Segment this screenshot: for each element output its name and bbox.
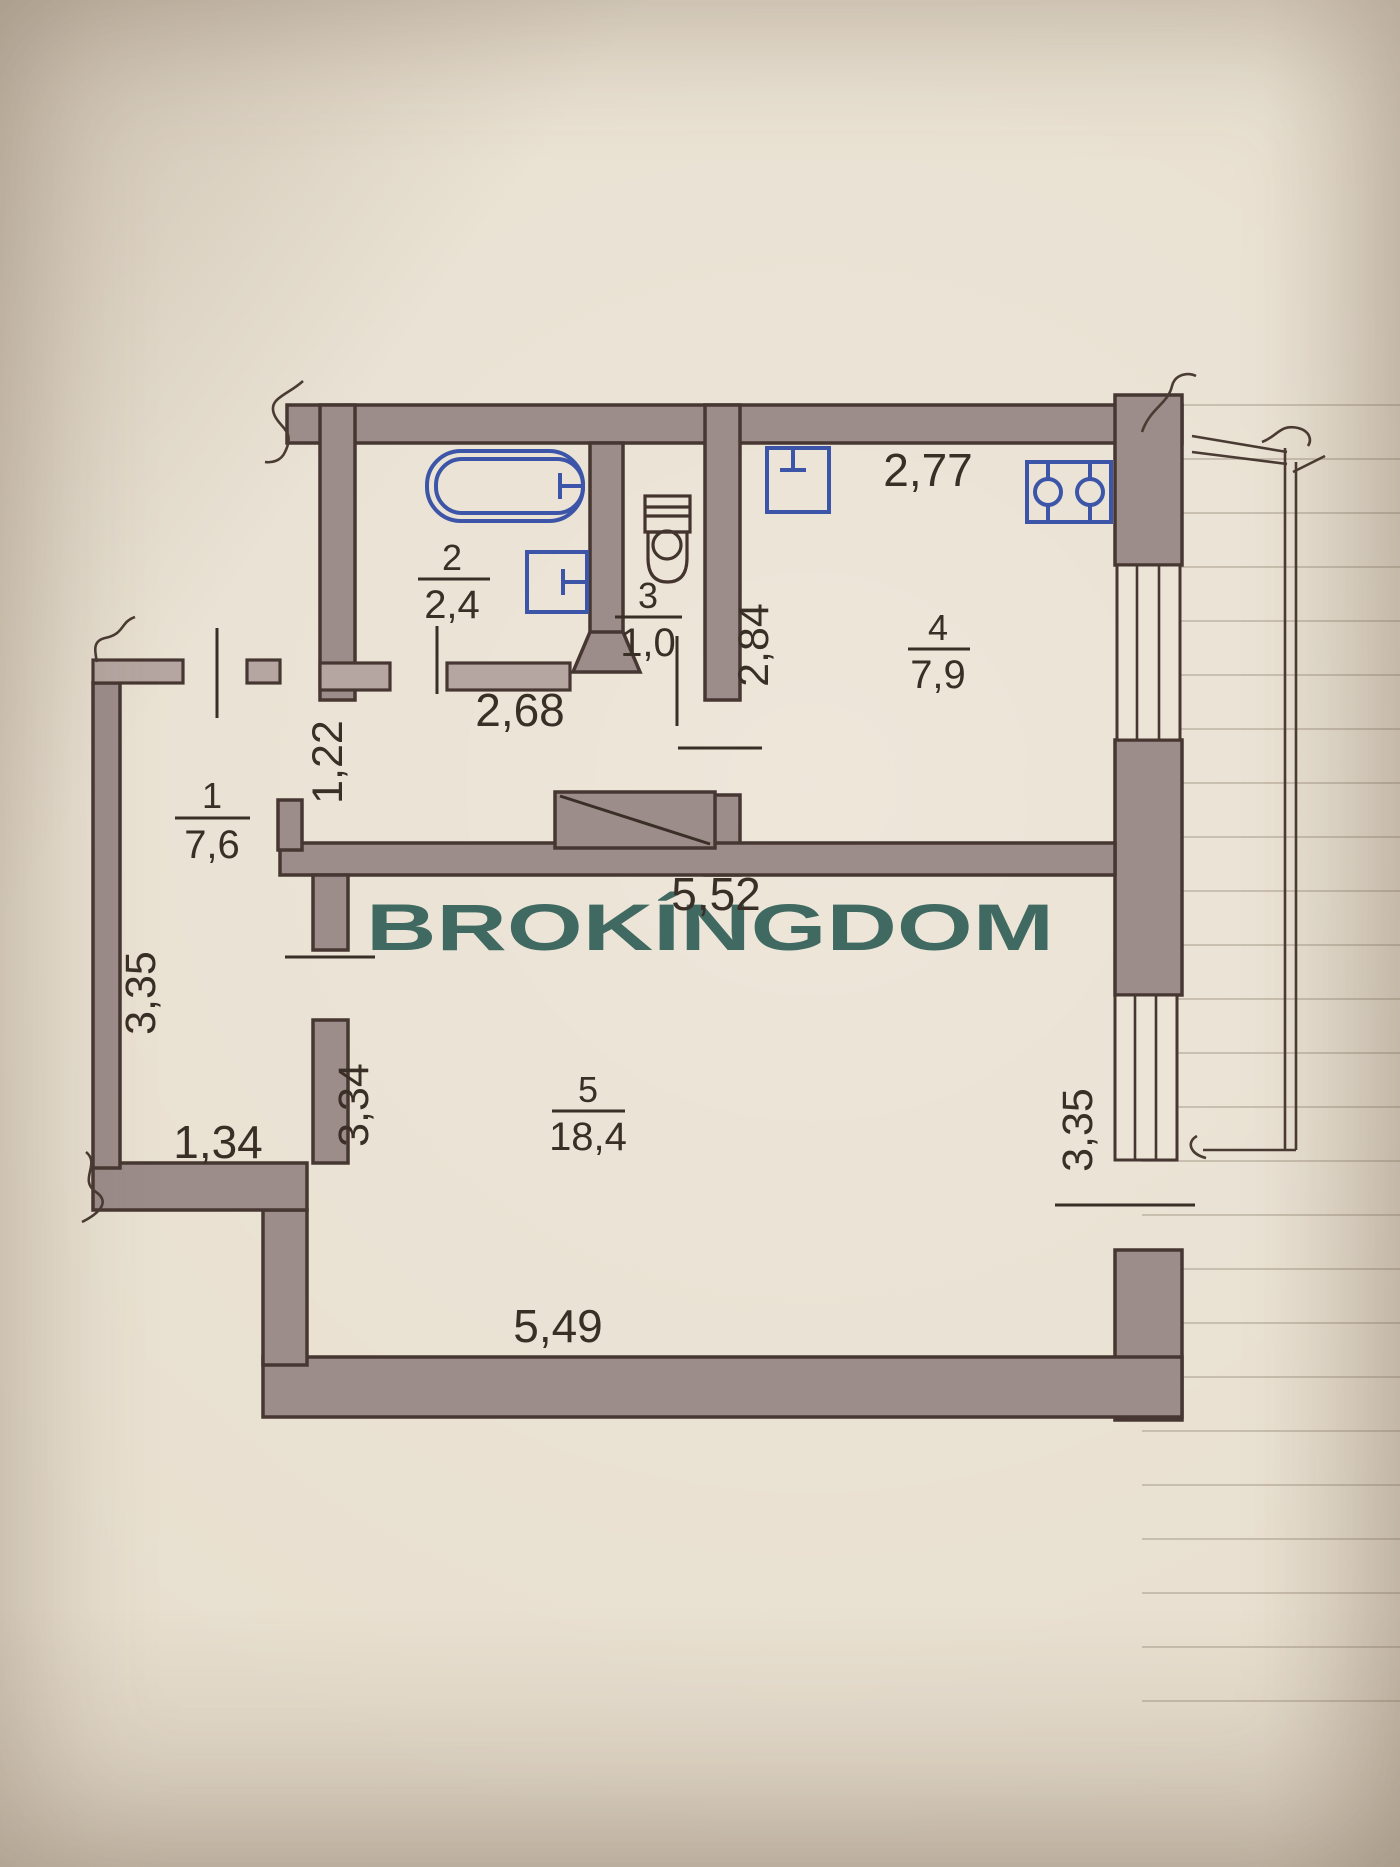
svg-text:1,0: 1,0 <box>620 621 676 665</box>
svg-text:3: 3 <box>638 575 658 616</box>
wall-living-left-lower <box>263 1210 307 1365</box>
balcony-outline <box>1191 436 1325 1158</box>
svg-text:18,4: 18,4 <box>549 1115 627 1159</box>
wall-hall-top-left <box>93 660 183 683</box>
break-line-balcony-end <box>1191 1136 1206 1158</box>
wall-hall-living-divider-upper <box>313 875 348 950</box>
bathtub-icon <box>427 451 583 521</box>
svg-text:7,9: 7,9 <box>910 653 966 697</box>
room-label-bathroom: 2 2,4 <box>418 537 490 627</box>
wall-bath-bottom-left <box>320 663 390 690</box>
svg-text:4: 4 <box>928 607 948 648</box>
dim-kitchen-depth: 2,84 <box>730 603 778 687</box>
dim-hall-width: 1,34 <box>173 1116 263 1168</box>
break-line-balcony-top <box>1262 427 1310 446</box>
svg-text:2: 2 <box>442 537 462 578</box>
room-label-kitchen: 4 7,9 <box>908 607 970 697</box>
dim-living-depth-right: 3,35 <box>1054 1088 1102 1172</box>
wall-bath-wc-divider <box>590 443 623 635</box>
window-living <box>1115 995 1177 1160</box>
dim-hall-depth: 3,35 <box>117 951 165 1035</box>
window-kitchen <box>1117 565 1180 740</box>
dim-kitchen-width: 2,77 <box>883 444 973 496</box>
wall-hall-top-right <box>247 660 280 683</box>
break-line-hall-top <box>95 617 135 662</box>
floor-plan-svg: BROKÍNGDOM 2,77 2,84 2,68 1,22 5,52 3,35… <box>0 0 1400 1867</box>
kitchen-sink-icon <box>767 448 829 512</box>
dim-corridor-width: 2,68 <box>475 684 565 736</box>
svg-text:1: 1 <box>202 775 222 816</box>
floor-plan-photo: BROKÍNGDOM 2,77 2,84 2,68 1,22 5,52 3,35… <box>0 0 1400 1867</box>
toilet-icon <box>645 496 690 582</box>
room-label-wc: 3 1,0 <box>615 575 682 665</box>
wall-bath-left <box>320 405 355 700</box>
svg-text:7,6: 7,6 <box>184 823 240 867</box>
room-label-living: 5 18,4 <box>549 1069 627 1159</box>
vent-shaft-icon <box>555 792 715 848</box>
bath-sink-icon <box>527 552 587 612</box>
stove-icon <box>1027 462 1111 522</box>
dim-living-width-bottom: 5,49 <box>513 1300 603 1352</box>
dim-living-width-top: 5,52 <box>671 868 761 920</box>
wall-pier <box>278 800 302 850</box>
svg-text:2,4: 2,4 <box>424 583 480 627</box>
dim-corridor-depth: 1,22 <box>304 720 352 804</box>
svg-text:5: 5 <box>578 1069 598 1110</box>
wall-bottom <box>263 1357 1182 1417</box>
room-label-hallway: 1 7,6 <box>175 775 250 867</box>
wall-hall-bottom <box>93 1163 307 1210</box>
wall-right-mid <box>1115 740 1182 995</box>
dim-living-depth-left: 3,34 <box>330 1063 378 1147</box>
wall-hall-left <box>93 683 120 1168</box>
